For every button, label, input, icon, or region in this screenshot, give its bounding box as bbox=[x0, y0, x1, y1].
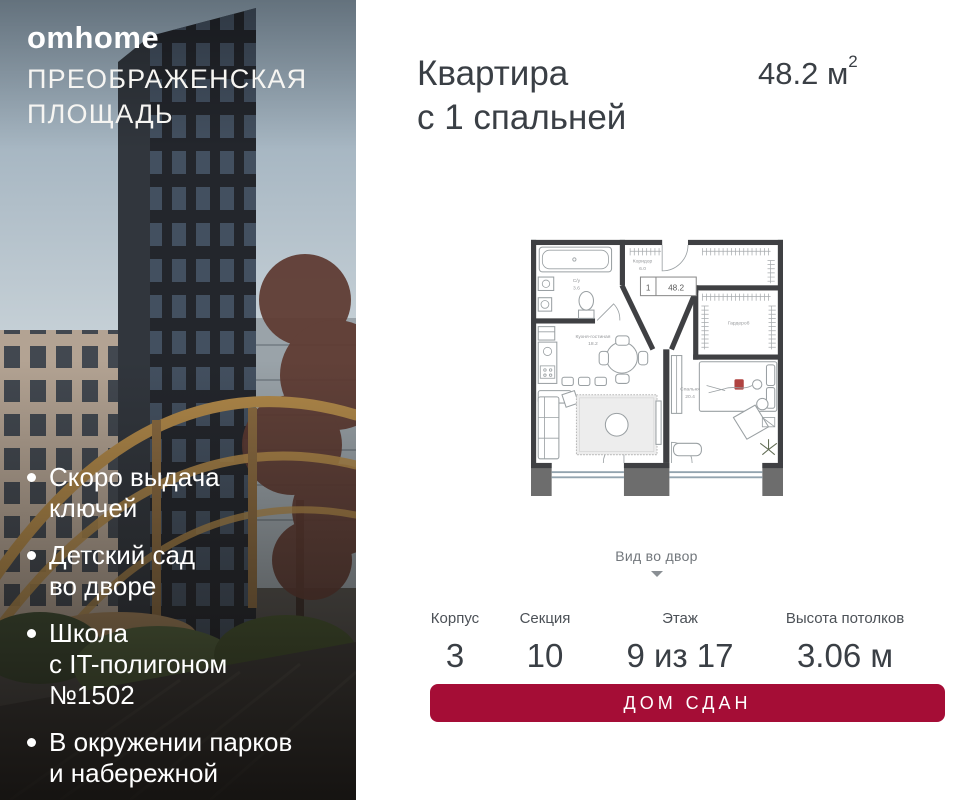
bullet-icon bbox=[27, 551, 36, 560]
svg-text:48.2: 48.2 bbox=[668, 283, 684, 292]
floor-plan-drawing: 1 48.2 bbox=[531, 238, 783, 502]
brand-logo: omhome bbox=[27, 20, 159, 56]
svg-text:3.6: 3.6 bbox=[573, 285, 580, 291]
feature-keys: Скоро выдачаключей bbox=[27, 462, 292, 524]
bullet-icon bbox=[27, 473, 36, 482]
stat-building: Корпус3 bbox=[431, 610, 479, 675]
svg-text:Коридор: Коридор bbox=[632, 259, 652, 265]
floor-plan: 1 48.2 bbox=[531, 238, 783, 502]
svg-text:Спальня: Спальня bbox=[680, 387, 700, 393]
svg-text:6.0: 6.0 bbox=[639, 266, 646, 272]
bullet-icon bbox=[27, 738, 36, 747]
apartment-panel: Квартира с 1 спальней 48.2 м2 bbox=[356, 0, 957, 800]
apartment-area: 48.2 м2 bbox=[758, 56, 858, 92]
svg-text:Кухня-гостиная: Кухня-гостиная bbox=[575, 334, 610, 340]
plan-area-tag: 1 48.2 bbox=[640, 277, 696, 296]
svg-text:20.4: 20.4 bbox=[685, 394, 695, 400]
stat-floor: Этаж9 из 17 bbox=[627, 610, 734, 675]
view-label: Вид во двор bbox=[615, 548, 698, 564]
courtyard-view: Вид во двор bbox=[356, 548, 957, 577]
apartment-title: Квартира с 1 спальней bbox=[417, 52, 626, 140]
svg-text:С/у: С/у bbox=[572, 278, 580, 284]
listing-card: omhome ПРЕОБРАЖЕНСКАЯ ПЛОЩАДЬ Скоро выда… bbox=[0, 0, 957, 800]
feature-list: Скоро выдачаключей Детский садво дворе Ш… bbox=[27, 462, 292, 800]
svg-text:Гардероб: Гардероб bbox=[727, 321, 749, 327]
feature-school: Школас IT-полигоном№1502 bbox=[27, 618, 292, 711]
project-name-line2: ПЛОЩАДЬ bbox=[27, 99, 174, 129]
feature-kindergarten: Детский садво дворе bbox=[27, 540, 292, 602]
feature-parks: В окружении паркови набережной bbox=[27, 727, 292, 789]
svg-text:1: 1 bbox=[645, 283, 650, 292]
stat-section: Секция10 bbox=[520, 610, 571, 675]
project-name-line1: ПРЕОБРАЖЕНСКАЯ bbox=[27, 64, 307, 94]
arrow-down-icon bbox=[651, 571, 663, 577]
project-name: ПРЕОБРАЖЕНСКАЯ ПЛОЩАДЬ bbox=[27, 62, 307, 132]
house-delivered-button[interactable]: ДОМ СДАН bbox=[430, 684, 945, 722]
project-photo: omhome ПРЕОБРАЖЕНСКАЯ ПЛОЩАДЬ Скоро выда… bbox=[0, 0, 356, 800]
bullet-icon bbox=[27, 629, 36, 638]
svg-text:18.2: 18.2 bbox=[588, 341, 598, 347]
stat-ceiling-height: Высота потолков3.06 м bbox=[786, 610, 904, 675]
